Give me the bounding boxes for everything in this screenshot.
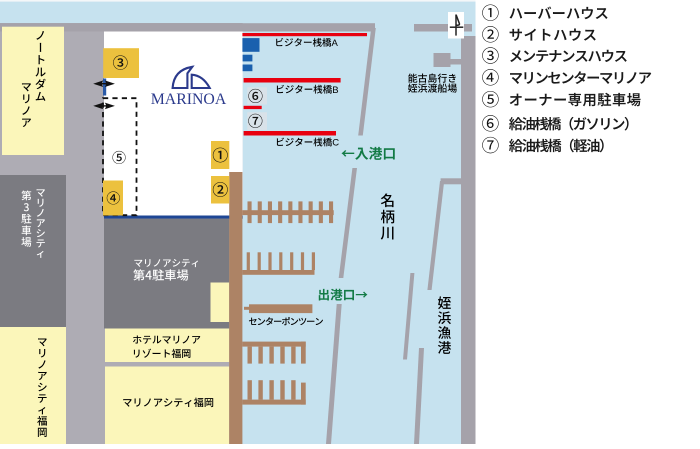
svg-text:B: B — [332, 85, 338, 96]
svg-text:MARINOA: MARINOA — [151, 91, 227, 108]
svg-text:C: C — [332, 138, 339, 149]
svg-text:A: A — [332, 38, 339, 49]
